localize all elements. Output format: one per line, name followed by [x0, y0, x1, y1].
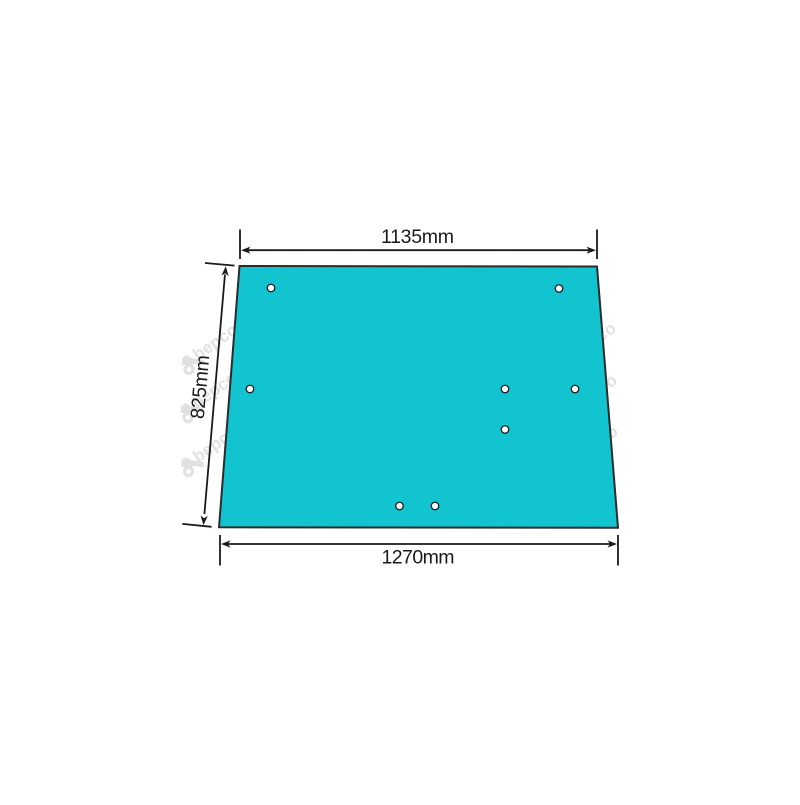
- svg-text:1270mm: 1270mm: [382, 547, 455, 569]
- svg-text:1135mm: 1135mm: [381, 226, 454, 248]
